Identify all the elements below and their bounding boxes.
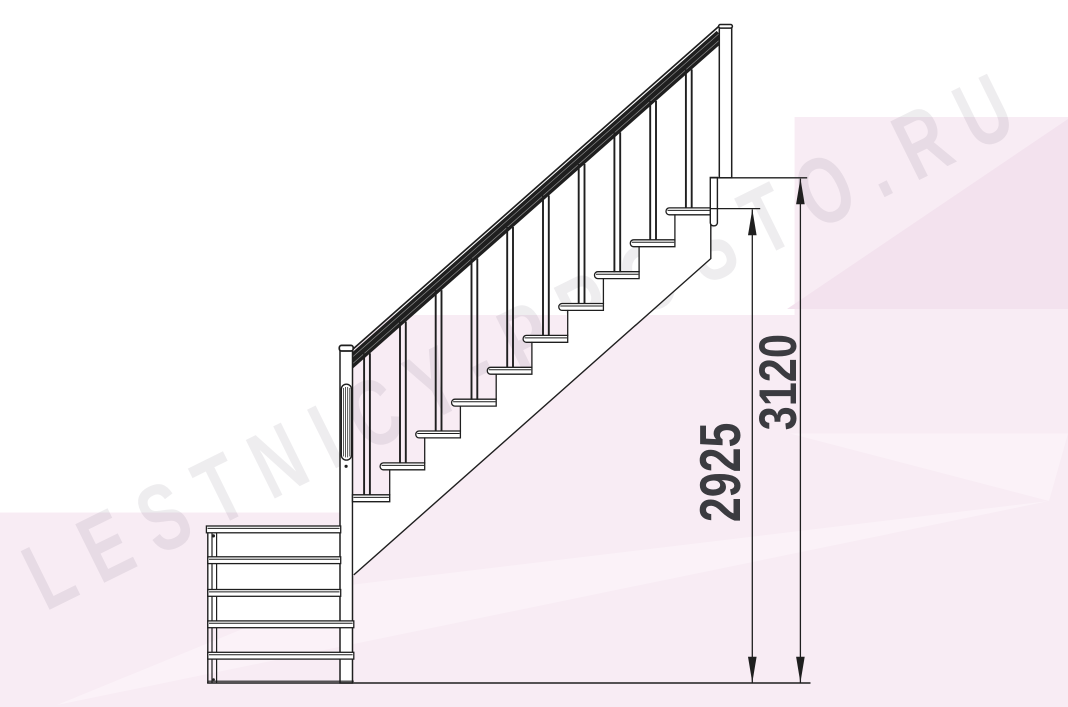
svg-text:3120: 3120 bbox=[749, 334, 808, 430]
svg-text:2925: 2925 bbox=[689, 423, 752, 522]
